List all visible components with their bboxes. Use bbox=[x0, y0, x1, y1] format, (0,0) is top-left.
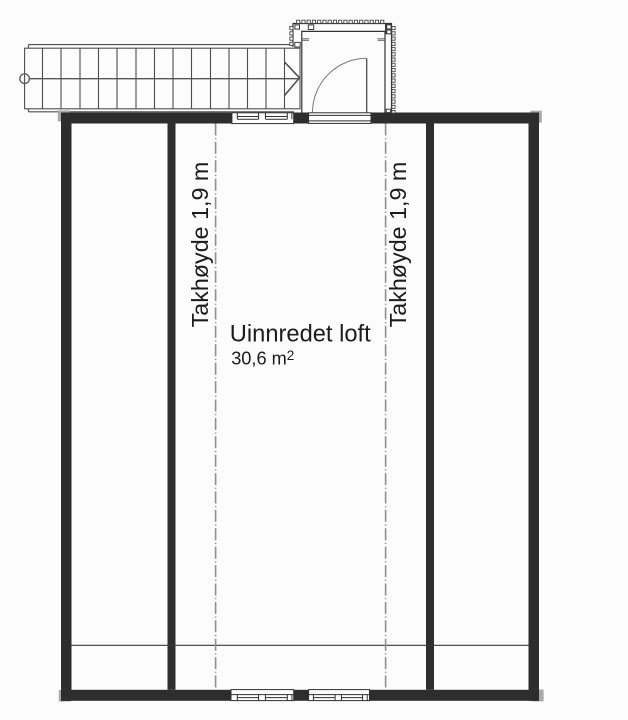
svg-text:Uinnredet loft: Uinnredet loft bbox=[230, 321, 371, 347]
svg-text:Takhøyde 1,9 m: Takhøyde 1,9 m bbox=[385, 162, 411, 328]
svg-text:Takhøyde 1,9 m: Takhøyde 1,9 m bbox=[187, 162, 213, 328]
svg-text:30,6 m2: 30,6 m2 bbox=[231, 348, 294, 369]
